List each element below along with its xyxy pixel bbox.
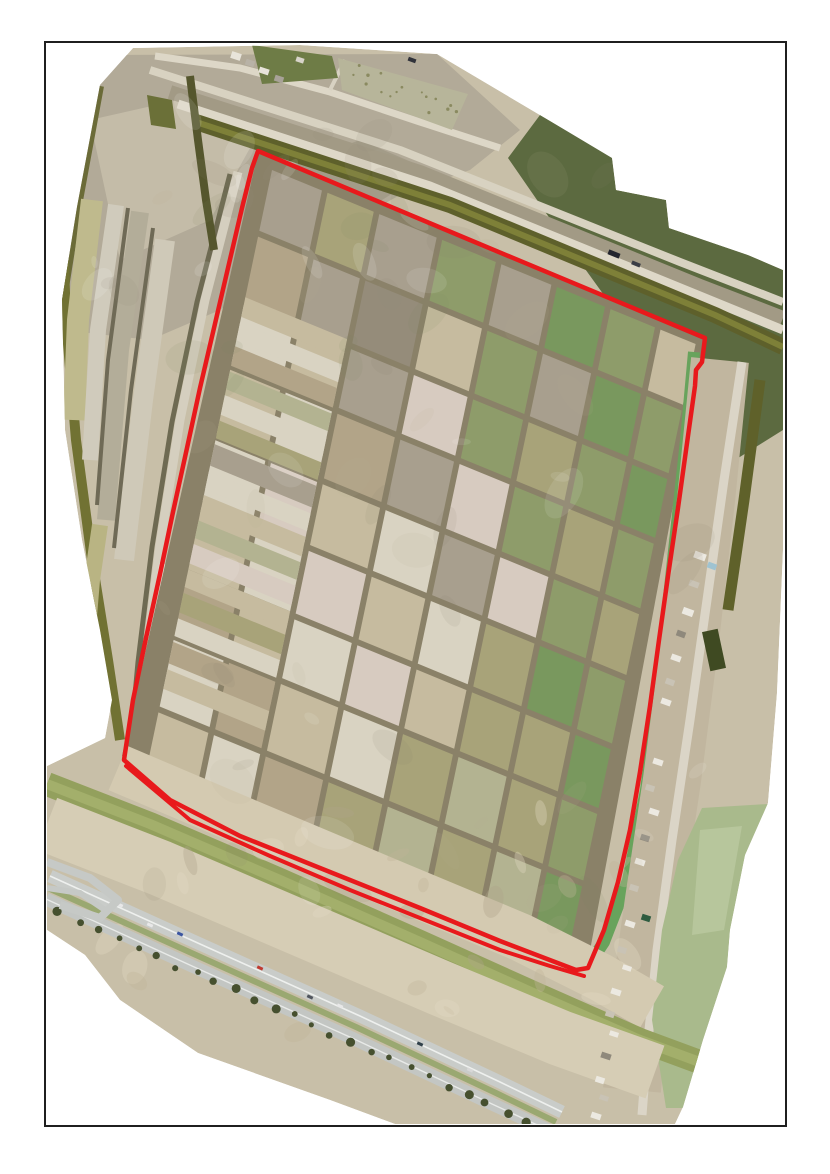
aerial-orthophoto-svg [0,0,830,1174]
orthophoto-figure [0,0,830,1174]
tl-pond [147,95,176,129]
